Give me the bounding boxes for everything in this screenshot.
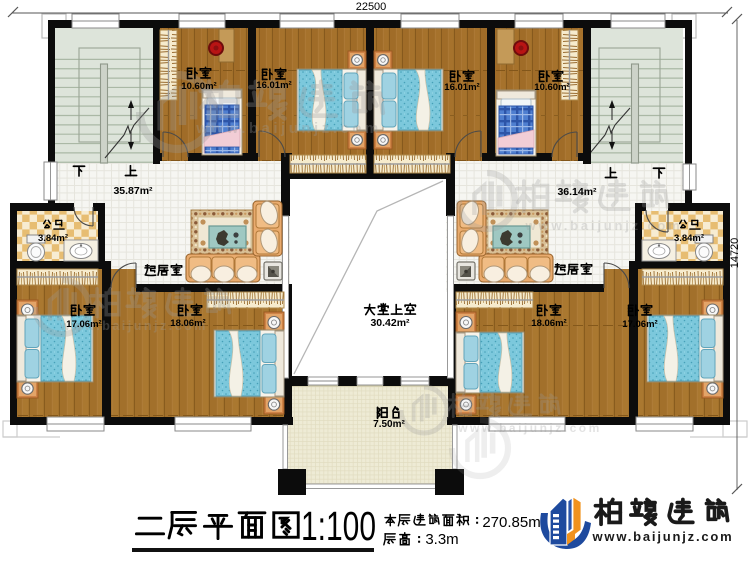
svg-text:www.baijunjz.com: www.baijunjz.com <box>592 529 734 544</box>
svg-text:36.14m²: 36.14m² <box>557 186 597 198</box>
svg-text:3.84m²: 3.84m² <box>674 233 704 244</box>
svg-text:18.06m²: 18.06m² <box>531 318 566 329</box>
svg-text:7.50m²: 7.50m² <box>373 419 405 430</box>
svg-text:270.85m²: 270.85m² <box>482 514 545 531</box>
svg-text:18.06m²: 18.06m² <box>170 318 205 329</box>
svg-text:16.01m²: 16.01m² <box>256 80 291 91</box>
svg-text:www.baijunjz.com: www.baijunjz.com <box>525 218 683 233</box>
svg-text:10.60m²: 10.60m² <box>534 82 569 93</box>
svg-text:17.06m²: 17.06m² <box>66 319 101 330</box>
svg-text:35.87m²: 35.87m² <box>113 185 153 197</box>
svg-text:14720: 14720 <box>729 238 741 269</box>
svg-text:3.84m²: 3.84m² <box>38 233 68 244</box>
svg-text:17.06m²: 17.06m² <box>622 319 657 330</box>
svg-text:10.60m²: 10.60m² <box>181 81 216 92</box>
svg-text:www.baijunjz.com: www.baijunjz.com <box>195 120 381 137</box>
svg-text:3.3m: 3.3m <box>425 531 458 548</box>
svg-text:30.42m²: 30.42m² <box>370 317 410 329</box>
svg-text:22500: 22500 <box>356 1 387 13</box>
svg-text:1:100: 1:100 <box>301 503 376 549</box>
svg-text:16.01m²: 16.01m² <box>444 82 479 93</box>
